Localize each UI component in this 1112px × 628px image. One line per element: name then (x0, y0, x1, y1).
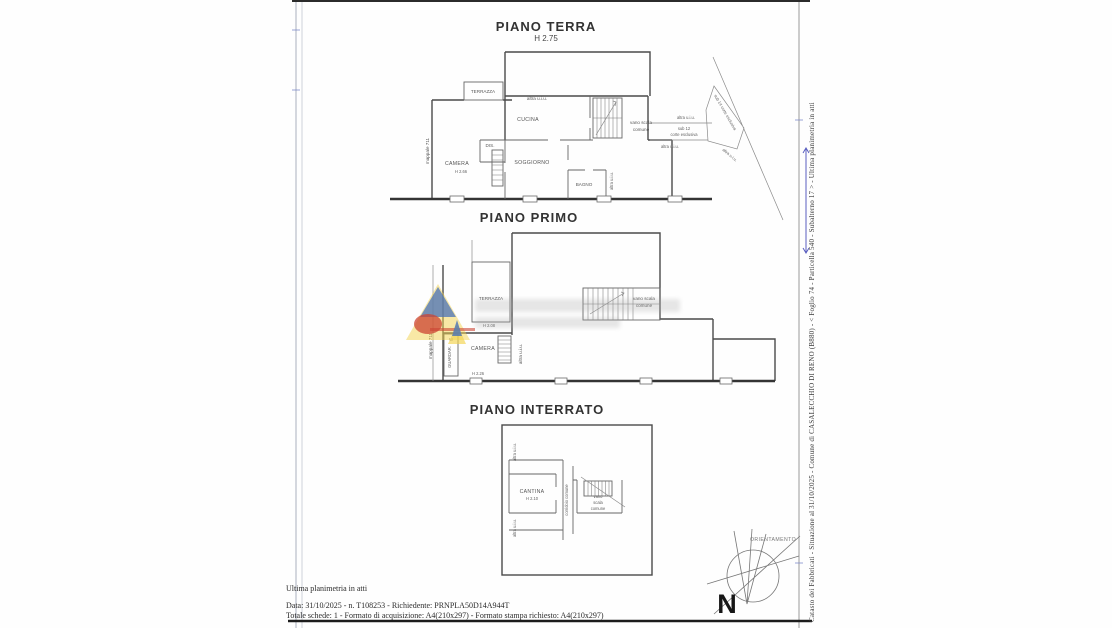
pp-label-mappale: mappale 711 (428, 332, 433, 359)
pt-label-altra-top: altra u.i.u. (527, 96, 547, 101)
pi-label-vano-1: vano (594, 494, 604, 499)
pt-window-sill (523, 196, 537, 202)
pi-label-corridoio: corridoio comune (564, 484, 569, 516)
pt-label-sub12-1: sub 12 (678, 126, 691, 131)
pt-label-altra-diag: altra u.i.u. (721, 147, 738, 162)
pp-terrazza-walls (472, 262, 510, 322)
pt-label-bagno: BAGNO (576, 182, 593, 187)
pp-label-altra-vert: altra u.i.u. (518, 344, 523, 364)
pt-label-sub14: sub 14 corte esclusiva (713, 93, 738, 131)
pp-window-sill (720, 378, 732, 384)
north-label: N (717, 589, 737, 619)
pp-label-camera-h: H 2.26 (472, 371, 485, 376)
pp-label-guardaroba: GUARDAR. (447, 346, 452, 368)
pi-label-vano-2: scala (593, 500, 603, 505)
pp-window-sill (640, 378, 652, 384)
pt-label-camera-h: H 2.66 (455, 169, 468, 174)
pp-label-camera: CAMERA (471, 346, 495, 352)
pt-label-altra-bagno: altra u.i.u. (609, 172, 614, 190)
pt-label-mappale: mappale 711 (425, 137, 430, 164)
piano-interrato-title: PIANO INTERRATO (470, 402, 604, 417)
piano-terra-height: H 2.75 (534, 34, 558, 43)
footer-line-3: Totale schede: 1 - Formato di acquisizio… (286, 611, 604, 620)
cadastral-plan-page: PIANO TERRA H 2.75 TERRAZZA altra u.i.u.… (0, 0, 1112, 628)
pi-label-cantina-h: H 2.10 (526, 496, 539, 501)
cadastral-side-text: Catasto dei Fabbricati - Situazione al 3… (808, 77, 816, 622)
pi-label-vano-3: comune (591, 506, 606, 511)
pt-window-sill (450, 196, 464, 202)
pt-window-sill (597, 196, 611, 202)
watermark-ghost-text (475, 317, 620, 328)
piano-primo-plan: PIANO PRIMO TERRAZZA H 2.08 CAMERA H 2.2… (398, 210, 775, 384)
pp-internal-stairs-steps (498, 340, 511, 360)
pt-label-sub12-2: corte esclusiva (670, 132, 698, 137)
pi-label-cantina: CANTINA (520, 489, 545, 495)
pt-label-altra-right-top: altra u.i.u. (677, 115, 695, 120)
pt-label-altra-right-mid: altra u.i.u. (661, 144, 679, 149)
piano-terra-title: PIANO TERRA (496, 19, 597, 34)
pp-window-sill (555, 378, 567, 384)
pt-label-vano-scala-1: vano scala (630, 120, 652, 125)
footer-line-2: Data: 31/10/2025 - n. T108253 - Richiede… (286, 601, 509, 610)
pp-window-sill (470, 378, 482, 384)
pt-label-terrazza: TERRAZZA (471, 89, 496, 94)
watermark-ghost-text (475, 299, 680, 312)
pt-common-stairs-steps (593, 98, 622, 138)
pt-outer-walls (432, 52, 672, 199)
pt-internal-stairs (492, 150, 503, 186)
page-borders (288, 0, 812, 628)
pi-label-altra-bottom: altra u.i.u. (512, 519, 517, 537)
piano-terra-plan: PIANO TERRA H 2.75 TERRAZZA altra u.i.u.… (390, 19, 783, 220)
pp-label-w: W (449, 337, 453, 342)
floor-plan-canvas: PIANO TERRA H 2.75 TERRAZZA altra u.i.u.… (0, 0, 1112, 628)
pt-label-dis: DIS. (486, 143, 495, 148)
pi-label-altra-top: altra u.i.u. (512, 443, 517, 461)
pt-internal-stairs-steps (492, 155, 503, 180)
piano-interrato-plan: PIANO INTERRATO altra u.i.u. altra u.i.u… (470, 402, 652, 575)
orientation-label: ORIENTAMENTO (750, 537, 796, 543)
pi-stairs-diagonal (581, 477, 625, 507)
pt-label-soggiorno: SOGGIORNO (514, 160, 549, 166)
pt-window-sill (668, 196, 682, 202)
footer-line-1: Ultima planimetria in atti (286, 584, 367, 593)
pt-label-cucina: CUCINA (517, 117, 539, 123)
pt-label-camera: CAMERA (445, 161, 469, 167)
pt-label-vano-scala-2: comune (633, 127, 650, 132)
piano-primo-title: PIANO PRIMO (480, 210, 578, 225)
pt-parcel-boundaries (650, 57, 783, 220)
compass-rose: ORIENTAMENTO N (707, 529, 800, 619)
